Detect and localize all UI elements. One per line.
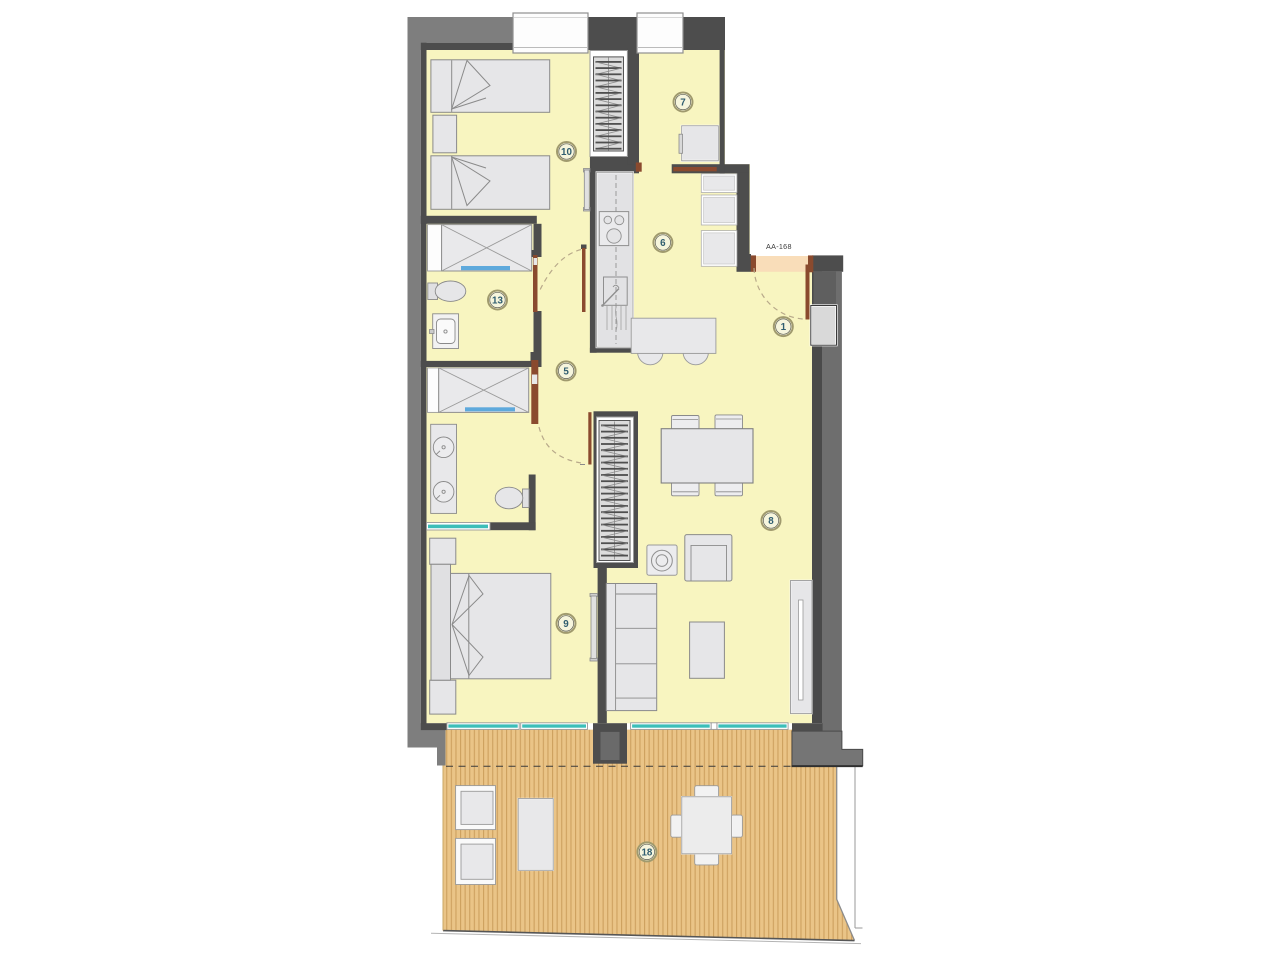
svg-text:7: 7 (680, 98, 686, 109)
svg-text:5: 5 (563, 367, 569, 378)
svg-text:6: 6 (660, 238, 666, 249)
svg-text:1: 1 (781, 322, 787, 333)
svg-text:10: 10 (561, 147, 572, 158)
svg-text:9: 9 (563, 619, 569, 630)
svg-text:18: 18 (641, 848, 652, 859)
svg-text:AA-168: AA-168 (766, 242, 792, 251)
svg-text:13: 13 (492, 296, 503, 307)
svg-text:8: 8 (768, 516, 774, 527)
